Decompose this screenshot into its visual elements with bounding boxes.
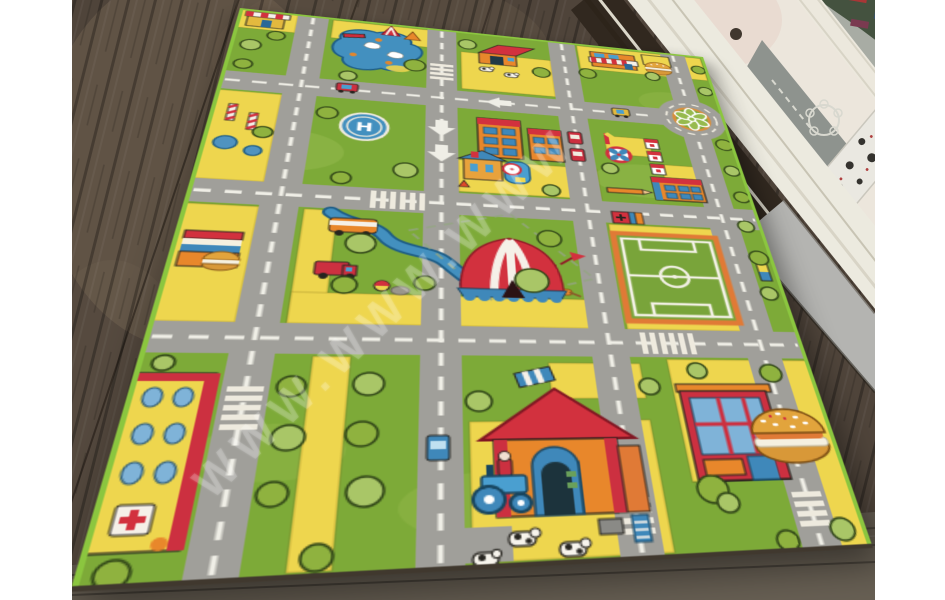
car-blue — [427, 435, 450, 460]
letterbox-right — [875, 0, 945, 600]
photo-screenshot: H — [0, 0, 945, 600]
door-handle — [730, 28, 742, 40]
school — [651, 177, 707, 203]
burger-kiosk — [175, 230, 246, 271]
helipad-letter: H — [355, 120, 374, 135]
photo: H — [72, 0, 875, 600]
aid-kiosk — [611, 211, 644, 224]
letterbox-left — [0, 0, 72, 600]
